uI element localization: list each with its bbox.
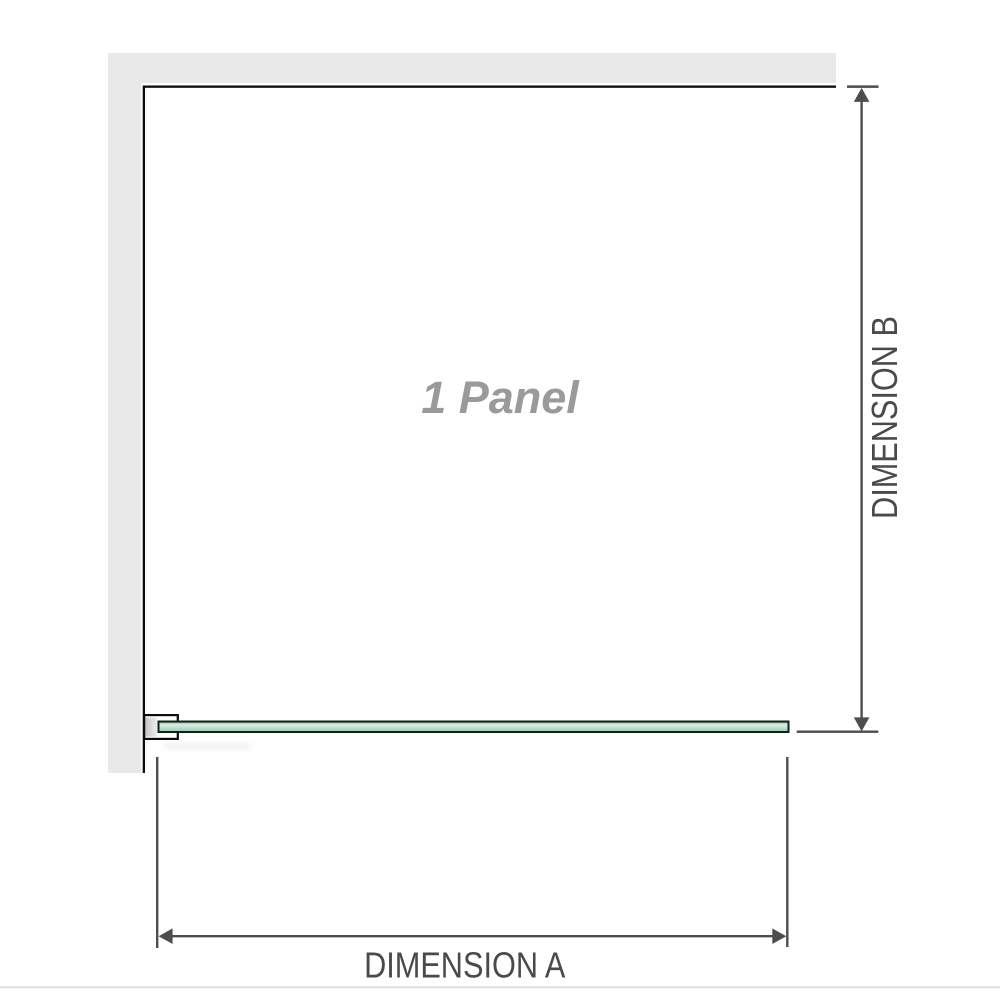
svg-text:1 Panel: 1 Panel — [421, 372, 580, 423]
svg-text:DIMENSION A: DIMENSION A — [364, 946, 566, 986]
svg-text:DIMENSION B: DIMENSION B — [866, 316, 906, 519]
